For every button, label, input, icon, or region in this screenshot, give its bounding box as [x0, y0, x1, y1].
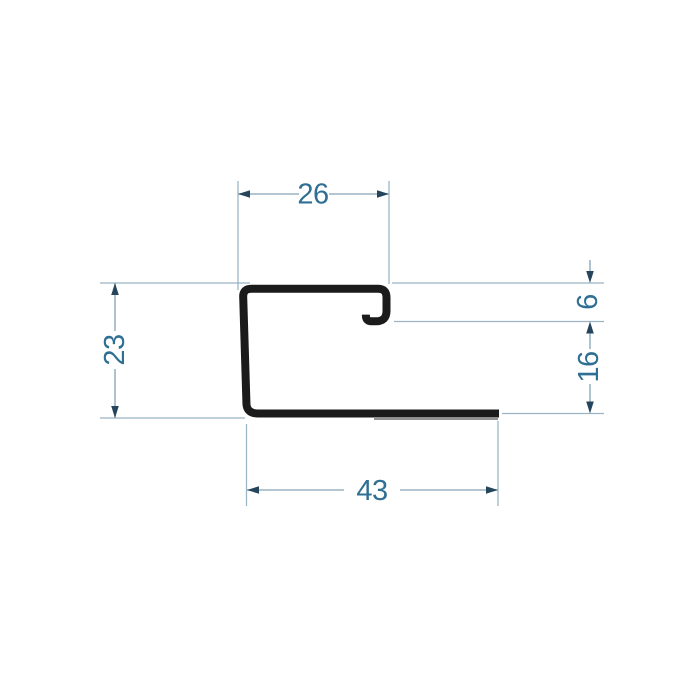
label-left-height: 23 [99, 334, 131, 365]
arrow-lip-down [586, 271, 594, 283]
arrow-right-height-down [586, 402, 594, 414]
dimension-lines [115, 194, 590, 490]
profile-dimension-drawing: 26 23 6 16 43 [0, 0, 700, 700]
profile-outline [243, 289, 499, 414]
label-bottom-width: 43 [356, 475, 387, 507]
extension-lines [100, 181, 604, 506]
dimension-labels: 26 23 6 16 43 [99, 179, 605, 508]
arrow-lip-right-up [586, 322, 594, 334]
arrow-top-width-left [238, 190, 250, 198]
arrow-left-height-down [111, 406, 119, 418]
arrowheads [111, 190, 594, 494]
label-lip-depth: 6 [572, 294, 604, 310]
arrow-bottom-width-left [247, 486, 259, 494]
label-right-height: 16 [573, 351, 605, 382]
label-top-width: 26 [297, 179, 328, 211]
arrow-bottom-width-right [486, 486, 498, 494]
arrow-top-width-right [377, 190, 389, 198]
arrow-left-height-up [111, 283, 119, 295]
drawing-canvas: 26 23 6 16 43 [0, 0, 700, 700]
